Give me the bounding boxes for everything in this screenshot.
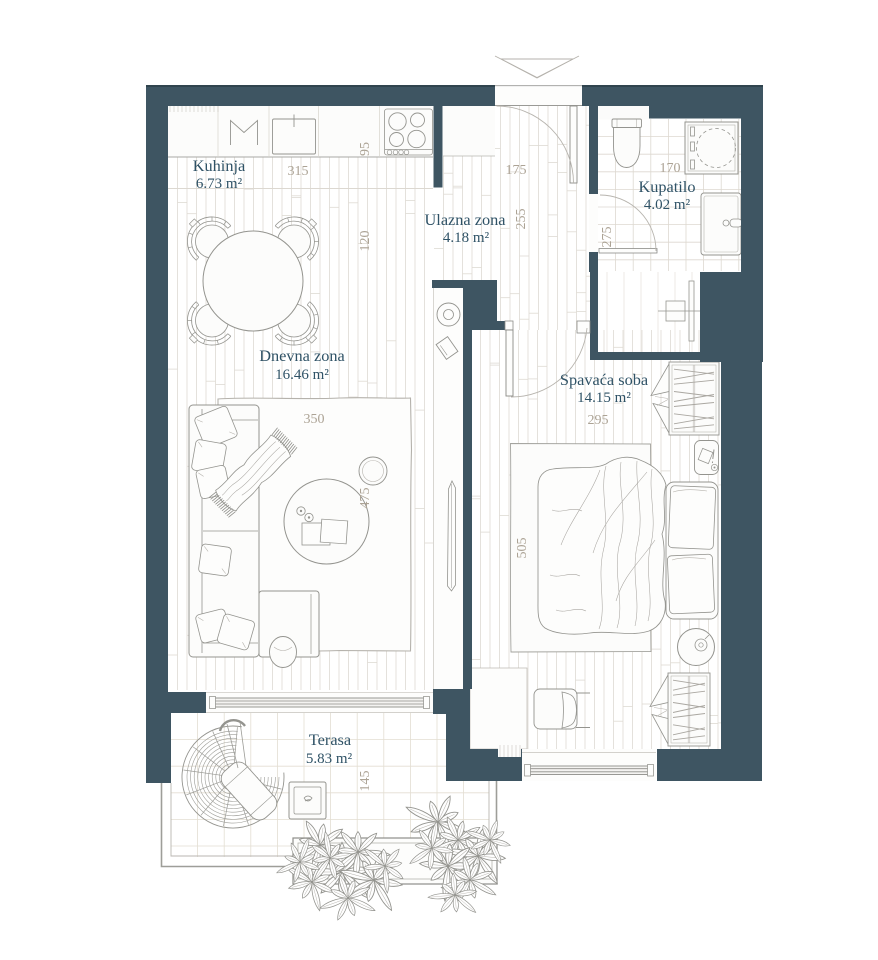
svg-text:4.18 m²: 4.18 m² [443, 230, 490, 246]
svg-text:16.46 m²: 16.46 m² [275, 367, 329, 383]
svg-text:Dnevna zona: Dnevna zona [259, 346, 344, 365]
svg-text:Kupatilo: Kupatilo [639, 177, 696, 196]
svg-text:295: 295 [588, 413, 609, 428]
svg-text:275: 275 [600, 227, 615, 248]
svg-text:Ulazna zona: Ulazna zona [425, 210, 506, 229]
svg-text:475: 475 [358, 488, 373, 509]
svg-text:315: 315 [288, 164, 309, 179]
svg-text:Kuhinja: Kuhinja [193, 156, 245, 175]
svg-text:175: 175 [506, 163, 527, 178]
svg-text:6.73 m²: 6.73 m² [196, 176, 243, 192]
svg-text:255: 255 [514, 209, 529, 230]
svg-text:Spavaća soba: Spavaća soba [560, 370, 648, 389]
svg-text:95: 95 [358, 142, 373, 156]
svg-text:170: 170 [660, 161, 681, 176]
svg-text:505: 505 [515, 538, 530, 559]
svg-text:5.83 m²: 5.83 m² [306, 751, 353, 767]
svg-text:120: 120 [358, 231, 373, 252]
svg-text:4.02 m²: 4.02 m² [644, 197, 691, 213]
svg-text:145: 145 [358, 771, 373, 792]
svg-text:Terasa: Terasa [309, 730, 351, 749]
svg-text:14.15 m²: 14.15 m² [577, 390, 631, 406]
svg-text:350: 350 [304, 412, 325, 427]
